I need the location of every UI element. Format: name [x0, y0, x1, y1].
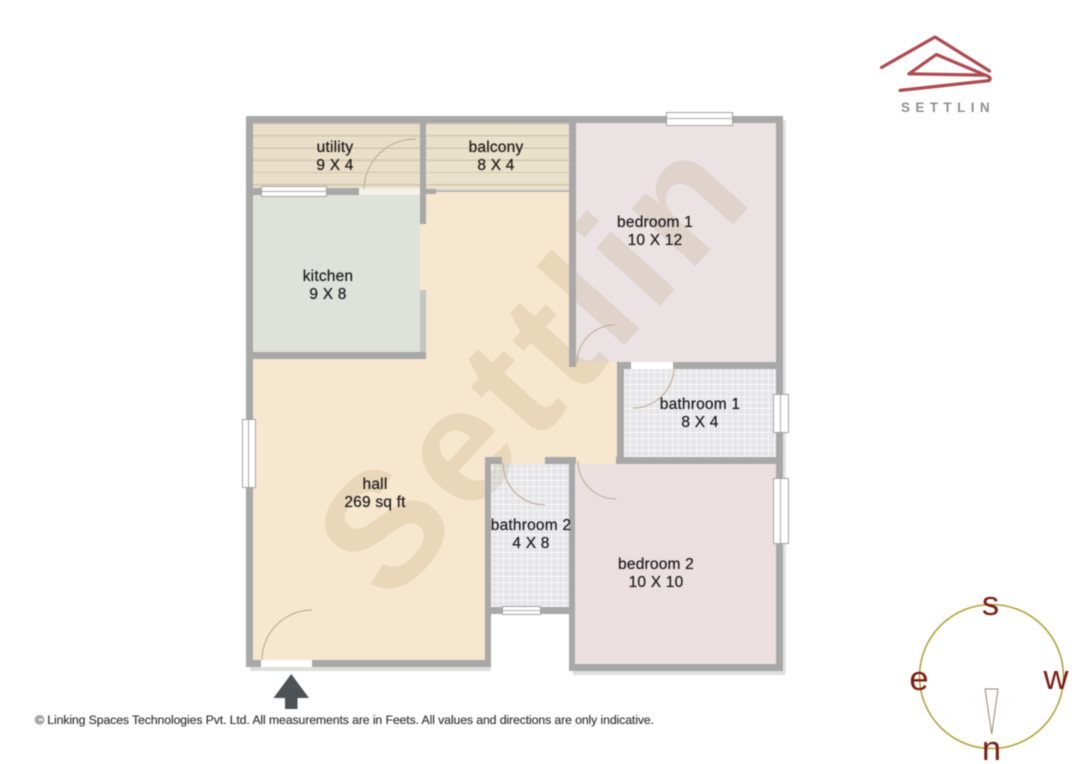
svg-text:n: n: [982, 730, 1001, 764]
svg-text:e: e: [909, 660, 928, 698]
svg-text:s: s: [982, 585, 999, 623]
svg-text:SETTLIN: SETTLIN: [901, 100, 995, 115]
svg-text:w: w: [1043, 659, 1069, 697]
